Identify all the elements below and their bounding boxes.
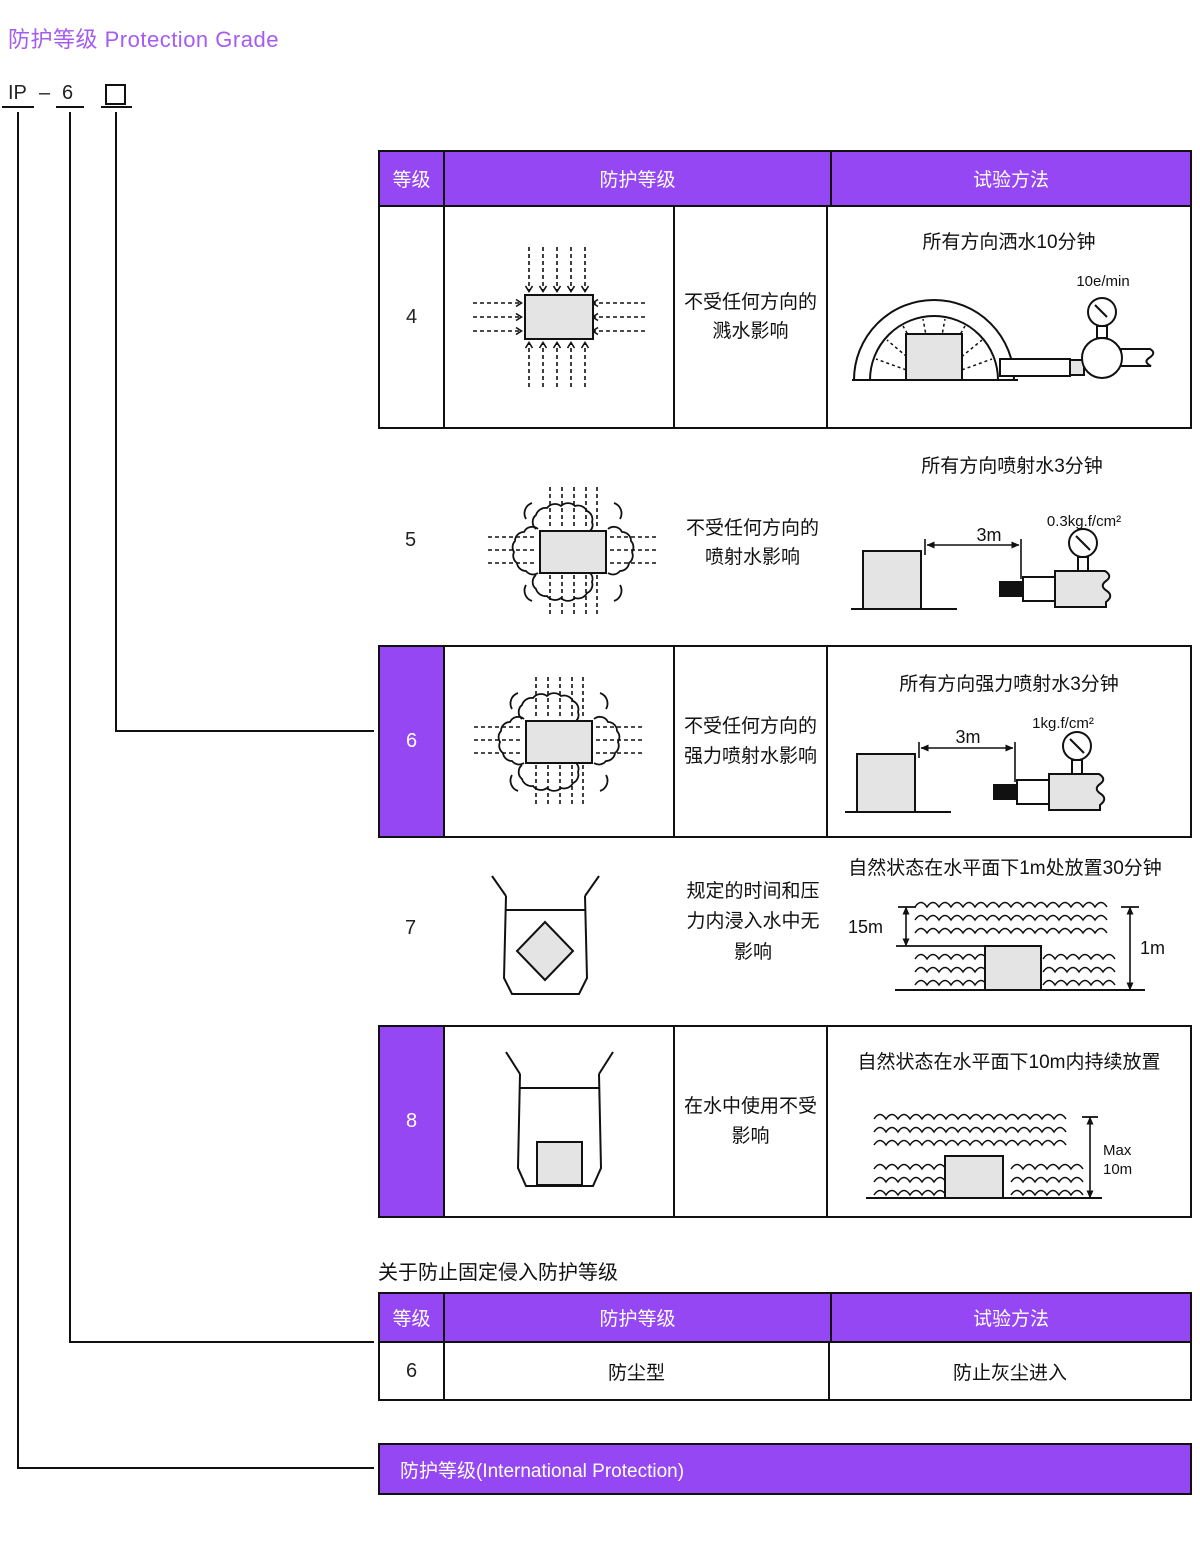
water-protection-table-row8: 8 在水中使用不受 影响 自然状态在水平面下10m内持续放置 (378, 1025, 1192, 1218)
table-header: 等级 防护等级 试验方法 (380, 152, 1190, 207)
grade-number: 6 (406, 730, 417, 753)
international-protection-bar: 防护等级(International Protection) (378, 1443, 1192, 1495)
pressure-label: 0.3kg.f/cm² (1014, 513, 1154, 532)
test-method-title: 所有方向喷射水3分钟 (832, 451, 1192, 478)
nozzle-tip (993, 784, 1017, 800)
protection-description: 在水中使用不受 影响 (684, 1092, 817, 1151)
header-test-method: 试验方法 (830, 1294, 1190, 1341)
hose-body (1055, 571, 1110, 607)
distance-label: 3m (959, 525, 1019, 546)
ip-underline-2 (56, 106, 84, 108)
ip-digit-placeholder-box (105, 84, 126, 105)
pressure-label: 1kg.f/cm² (993, 715, 1133, 734)
ip-underline-3 (101, 106, 132, 108)
underwater-test-illustration (864, 1107, 1124, 1207)
protection-description: 规定的时间和压 力内浸入水中无 影响 (668, 877, 838, 968)
device-box (906, 334, 962, 380)
device-diamond (517, 922, 573, 980)
dust-table-header: 等级 防护等级 试验方法 (380, 1294, 1190, 1343)
device-box (945, 1156, 1003, 1198)
depth-label: 15m (833, 917, 883, 938)
test-method-title: 自然状态在水平面下1m处放置30分钟 (818, 853, 1192, 880)
dust-section-caption: 关于防止固定侵入防护等级 (378, 1256, 618, 1285)
grade-number: 8 (406, 1110, 417, 1133)
grade-number: 4 (406, 306, 417, 329)
protection-grade-page: 防护等级 Protection Grade IP – 6 等级 防护等级 试验方… (0, 0, 1200, 1542)
protection-description: 不受任何方向的 溅水影响 (684, 288, 817, 347)
device-box (857, 754, 915, 812)
total-depth-label: 1m (1140, 938, 1165, 959)
device-box (985, 946, 1041, 990)
nozzle-tip (999, 581, 1023, 597)
device-box (863, 551, 921, 609)
international-protection-label: 防护等级(International Protection) (400, 1456, 684, 1483)
ip-code-digit: 6 (62, 82, 73, 105)
ip-code-separator: – (39, 82, 50, 105)
grade-number: 7 (378, 917, 443, 940)
test-method-title: 所有方向洒水10分钟 (828, 227, 1190, 254)
test-method-description: 防止灰尘进入 (953, 1358, 1067, 1385)
ip-code-prefix: IP (8, 82, 27, 105)
grade-number: 6 (406, 1360, 417, 1383)
immersion-icon (478, 870, 613, 1005)
protection-description: 不受任何方向的 喷射水影响 (675, 514, 830, 573)
jet-water-icon (478, 479, 668, 625)
strong-jet-water-icon (464, 669, 654, 815)
max-depth-label: Max 10m (1103, 1142, 1173, 1180)
table-row-grade5: 5 不受任何方向的 喷射水影响 所有方向喷射水3分钟 (378, 429, 1192, 645)
header-grade: 等级 (380, 1294, 443, 1341)
table-row-grade4: 4 (380, 207, 1190, 427)
header-grade: 等级 (380, 152, 443, 205)
hose-body (1049, 774, 1104, 810)
header-protection: 防护等级 (443, 1294, 830, 1341)
header-protection: 防护等级 (443, 152, 830, 205)
ip-underline-1 (2, 106, 34, 108)
dust-protection-table: 等级 防护等级 试验方法 6 防尘型 防止灰尘进入 (378, 1292, 1192, 1401)
device-box (540, 531, 606, 573)
underwater-icon (492, 1042, 627, 1202)
device-box (526, 721, 592, 763)
water-pipe (1000, 359, 1070, 376)
flow-rate-label: 10e/min (1048, 273, 1158, 292)
protection-description: 不受任何方向的 强力喷射水影响 (684, 712, 817, 771)
water-protection-table-header-row4: 等级 防护等级 试验方法 4 (378, 150, 1192, 429)
device-box (537, 1142, 582, 1185)
splash-water-icon (469, 237, 649, 397)
distance-label: 3m (938, 727, 998, 748)
page-title: 防护等级 Protection Grade (8, 22, 279, 54)
water-protection-table-row6: 6 (378, 645, 1192, 838)
test-method-title: 自然状态在水平面下10m内持续放置 (828, 1047, 1190, 1074)
grade-number: 5 (378, 529, 443, 552)
table-row-grade7: 7 规定的时间和压 力内浸入水中无 影响 自然状态在水平面下1m处放置30分钟 (378, 845, 1192, 1025)
protection-description: 防尘型 (608, 1358, 665, 1385)
dust-table-row-grade6: 6 防尘型 防止灰尘进入 (380, 1343, 1190, 1399)
device-box (525, 295, 593, 339)
header-test-method: 试验方法 (830, 152, 1190, 205)
immersion-test-illustration (890, 895, 1150, 995)
test-method-title: 所有方向强力喷射水3分钟 (828, 669, 1190, 696)
